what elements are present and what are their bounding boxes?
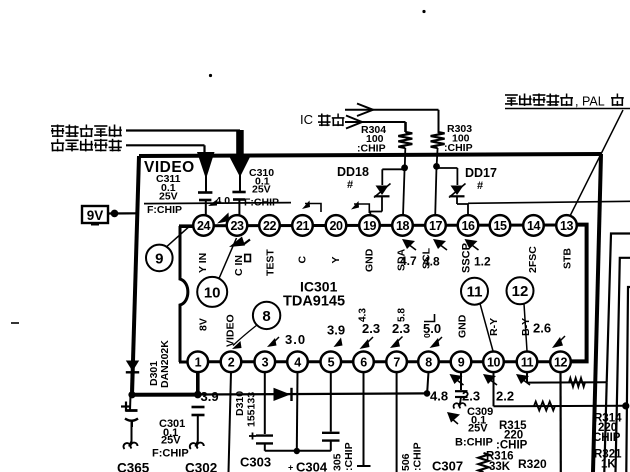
svg-text:F:CHIP: F:CHIP <box>147 204 182 216</box>
svg-text:2: 2 <box>228 355 235 369</box>
svg-text:19: 19 <box>363 219 376 233</box>
svg-text:155133: 155133 <box>246 392 258 427</box>
svg-text:CHIP: CHIP <box>593 432 621 444</box>
svg-text:2.3: 2.3 <box>362 321 380 336</box>
svg-text::CHIP: :CHIP <box>444 142 473 154</box>
svg-text:1K: 1K <box>601 459 616 471</box>
svg-text:3.9: 3.9 <box>327 323 345 338</box>
svg-text:305: 305 <box>332 453 344 471</box>
svg-text:13: 13 <box>560 219 573 233</box>
svg-text:F:CHIP: F:CHIP <box>152 448 189 460</box>
svg-text:VIDEO: VIDEO <box>225 314 237 347</box>
svg-text:B-Y: B-Y <box>520 318 532 336</box>
svg-text:TDA9145: TDA9145 <box>283 294 345 310</box>
svg-text:C304: C304 <box>296 460 328 472</box>
svg-text:DD17: DD17 <box>465 166 497 180</box>
svg-text:8: 8 <box>425 355 432 369</box>
svg-text:B:CHIP: B:CHIP <box>455 437 493 449</box>
svg-text:5.8: 5.8 <box>397 308 408 322</box>
svg-text:3.0: 3.0 <box>285 332 306 347</box>
svg-text:10: 10 <box>487 355 500 369</box>
svg-text:Y: Y <box>330 256 342 263</box>
svg-text:, PAL: , PAL <box>575 95 605 109</box>
svg-text:12: 12 <box>512 283 529 300</box>
svg-text:STB: STB <box>562 248 574 269</box>
svg-text:9: 9 <box>458 355 465 369</box>
svg-text:DD18: DD18 <box>337 165 369 179</box>
svg-text:8: 8 <box>262 308 270 325</box>
svg-text:C302: C302 <box>185 461 217 472</box>
svg-text:4.3: 4.3 <box>358 308 369 322</box>
svg-text:18: 18 <box>396 219 409 233</box>
svg-text:25V: 25V <box>252 184 271 196</box>
svg-text:GND: GND <box>364 248 376 272</box>
svg-text:C365: C365 <box>117 461 150 472</box>
svg-text:C: C <box>297 256 309 264</box>
svg-text:10: 10 <box>204 285 221 302</box>
svg-text::CHIP: :CHIP <box>357 143 386 155</box>
svg-text:+: + <box>288 463 293 472</box>
svg-text:4: 4 <box>294 355 301 369</box>
svg-text:4.8: 4.8 <box>430 389 448 404</box>
svg-text:#: # <box>477 180 483 192</box>
svg-text:24: 24 <box>197 219 210 233</box>
svg-text:GND: GND <box>457 314 469 338</box>
svg-text:33K: 33K <box>489 461 511 472</box>
svg-text:14: 14 <box>527 219 540 233</box>
svg-text:F:CHIP: F:CHIP <box>244 197 279 209</box>
svg-text:9V: 9V <box>87 208 104 223</box>
svg-text:2FSC: 2FSC <box>527 246 539 273</box>
svg-text:4.0: 4.0 <box>216 195 231 207</box>
svg-text:2.3: 2.3 <box>392 321 410 336</box>
svg-text:25V: 25V <box>468 423 488 435</box>
svg-text:C307: C307 <box>432 459 463 472</box>
svg-text:#: # <box>347 179 353 191</box>
svg-text:C303: C303 <box>240 455 271 470</box>
svg-text:3.9: 3.9 <box>201 389 219 404</box>
svg-text:9: 9 <box>155 250 163 267</box>
svg-text:D310: D310 <box>234 391 246 416</box>
svg-text:3: 3 <box>262 355 269 369</box>
svg-text:7: 7 <box>393 355 400 369</box>
svg-text:11: 11 <box>521 355 534 369</box>
svg-text:TEST: TEST <box>265 249 277 276</box>
svg-text:IC: IC <box>300 112 313 127</box>
svg-text:1: 1 <box>195 355 202 369</box>
svg-text:20: 20 <box>330 219 343 233</box>
svg-text:506: 506 <box>400 453 412 471</box>
svg-text:DAN202K: DAN202K <box>159 340 171 388</box>
svg-text:6: 6 <box>360 355 367 369</box>
svg-text:22: 22 <box>263 219 276 233</box>
svg-text:25V: 25V <box>161 435 181 447</box>
svg-text:IC301: IC301 <box>300 279 338 295</box>
svg-text:1.2: 1.2 <box>474 255 491 269</box>
svg-text:R320: R320 <box>518 457 547 471</box>
svg-text:16: 16 <box>462 219 475 233</box>
svg-text:15: 15 <box>494 219 507 233</box>
svg-text:2.6: 2.6 <box>533 321 551 336</box>
svg-text:4.7: 4.7 <box>400 254 417 268</box>
svg-text::CHIP: :CHIP <box>343 442 355 471</box>
svg-text:21: 21 <box>296 219 309 233</box>
svg-text:12: 12 <box>554 355 567 369</box>
svg-text:2.2: 2.2 <box>496 389 514 404</box>
svg-text:23: 23 <box>231 219 244 233</box>
svg-text:5: 5 <box>328 355 335 369</box>
svg-text:0: 0 <box>422 333 432 338</box>
svg-text:11: 11 <box>467 284 483 301</box>
svg-text:8V: 8V <box>198 318 210 331</box>
svg-text:Y IN: Y IN <box>197 253 209 273</box>
svg-text:R-Y: R-Y <box>488 318 500 336</box>
svg-text::CHIP: :CHIP <box>412 442 424 471</box>
svg-text:17: 17 <box>429 219 442 233</box>
svg-text:25V: 25V <box>159 191 178 203</box>
svg-text:4.8: 4.8 <box>423 255 440 269</box>
svg-text:C IN: C IN <box>233 255 245 276</box>
